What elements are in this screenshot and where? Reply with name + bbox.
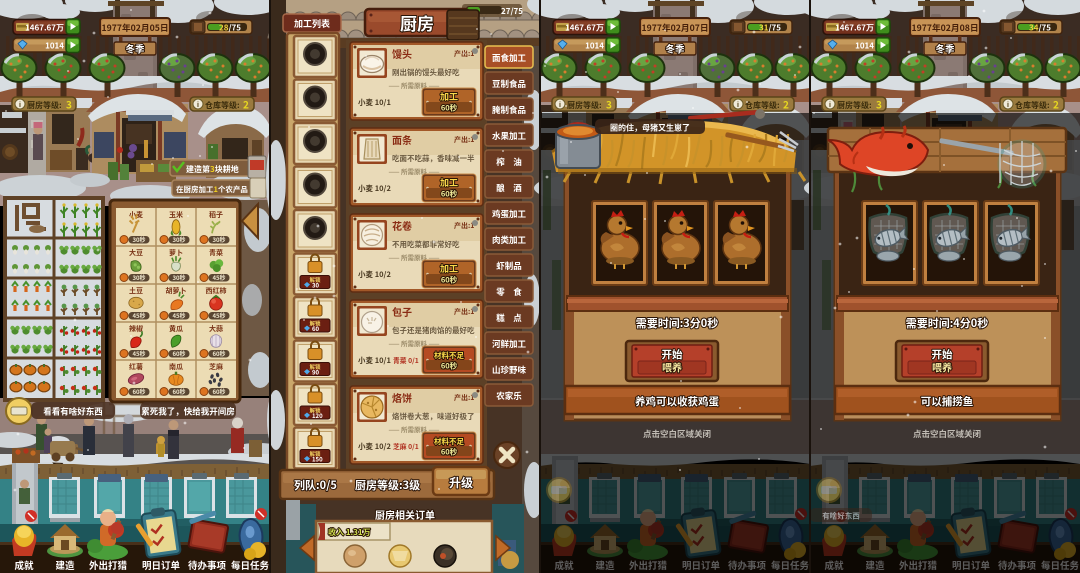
svg-text:小麦 10/2: 小麦 10/2 <box>358 183 391 194</box>
svg-text:升级: 升级 <box>449 474 473 491</box>
svg-text:点击空白区域关闭: 点击空白区域关闭 <box>643 428 711 440</box>
svg-text:零 食: 零 食 <box>496 286 522 298</box>
svg-text:60秒: 60秒 <box>212 387 225 396</box>
svg-text:i: i <box>197 100 199 110</box>
svg-text:冬季: 冬季 <box>125 42 145 56</box>
svg-text:虾制品: 虾制品 <box>496 260 522 272</box>
svg-text:31/75: 31/75 <box>759 23 781 34</box>
svg-text:刚出锅的馒头最好吃: 刚出锅的馒头最好吃 <box>392 67 460 78</box>
svg-text:60秒: 60秒 <box>172 349 185 358</box>
svg-text:吃面不吃蒜，香味减一半: 吃面不吃蒜，香味减一半 <box>392 153 475 164</box>
svg-text:60秒: 60秒 <box>172 387 185 396</box>
svg-text:产出:1: 产出:1 <box>454 135 474 145</box>
svg-text:2: 2 <box>1053 97 1059 112</box>
svg-text:仓库等级:: 仓库等级: <box>205 100 240 111</box>
svg-text:1977年02月07日: 1977年02月07日 <box>641 21 708 34</box>
svg-text:60秒: 60秒 <box>441 275 458 286</box>
svg-text:2: 2 <box>783 97 789 112</box>
svg-text:黄瓜: 黄瓜 <box>169 324 183 334</box>
svg-text:45秒: 45秒 <box>132 311 145 320</box>
svg-text:1014: 1014 <box>855 41 874 52</box>
svg-text:榨 油: 榨 油 <box>496 156 522 168</box>
svg-text:45秒: 45秒 <box>172 311 185 320</box>
svg-text:1467.67万: 1467.67万 <box>835 23 874 34</box>
svg-text:辣椒: 辣椒 <box>129 324 143 334</box>
svg-text:农家乐: 农家乐 <box>496 390 522 402</box>
svg-text:3: 3 <box>66 97 72 112</box>
svg-text:产出:1: 产出:1 <box>454 221 474 231</box>
svg-text:厨房等级:: 厨房等级: <box>567 100 602 111</box>
svg-text:90: 90 <box>312 368 320 377</box>
svg-text:厨房等级:: 厨房等级: <box>837 100 872 111</box>
svg-text:加工: 加工 <box>440 176 458 189</box>
svg-text:28/75: 28/75 <box>219 23 241 34</box>
svg-text:每日任务: 每日任务 <box>231 558 270 572</box>
svg-text:大蒜: 大蒜 <box>209 324 223 334</box>
svg-text:厨房等级:3级: 厨房等级:3级 <box>355 477 420 493</box>
svg-text:产出:1: 产出:1 <box>454 49 474 59</box>
svg-text:冬季: 冬季 <box>665 42 685 56</box>
svg-text:30秒: 30秒 <box>172 235 185 244</box>
svg-text:烙饼卷大葱，味道好极了: 烙饼卷大葱，味道好极了 <box>392 411 475 422</box>
svg-text:成就: 成就 <box>14 558 34 572</box>
svg-text:面条: 面条 <box>392 132 412 147</box>
svg-text:养鸡可以收获鸡蛋: 养鸡可以收获鸡蛋 <box>635 394 719 409</box>
svg-text:馒头: 馒头 <box>392 46 412 61</box>
svg-text:45秒: 45秒 <box>212 273 225 282</box>
svg-text:青菜: 青菜 <box>209 248 223 258</box>
svg-text:加工列表: 加工列表 <box>294 17 330 30</box>
svg-text:酿 酒: 酿 酒 <box>496 182 522 194</box>
svg-text:花卷: 花卷 <box>392 218 412 233</box>
svg-text:材料不足: 材料不足 <box>434 350 464 361</box>
svg-text:60秒: 60秒 <box>441 189 458 200</box>
svg-text:山珍野味: 山珍野味 <box>492 364 527 376</box>
svg-text:产出:1: 产出:1 <box>454 307 474 317</box>
svg-text:i: i <box>1007 100 1009 110</box>
svg-text:产出:1: 产出:1 <box>454 393 474 403</box>
svg-text:45秒: 45秒 <box>212 311 225 320</box>
svg-text:i: i <box>559 100 561 110</box>
svg-text:30秒: 30秒 <box>132 273 145 282</box>
svg-text:1467.67万: 1467.67万 <box>565 23 604 34</box>
svg-text:30秒: 30秒 <box>132 235 145 244</box>
svg-text:喂养: 喂养 <box>662 360 682 375</box>
svg-text:包子: 包子 <box>392 304 412 319</box>
svg-text:待办事项: 待办事项 <box>188 558 227 572</box>
svg-text:需要时间:3分0秒: 需要时间:3分0秒 <box>636 315 719 331</box>
svg-text:34/75: 34/75 <box>1029 23 1051 34</box>
svg-text:厨房等级:: 厨房等级: <box>27 100 62 111</box>
svg-text:1977年02月05日: 1977年02月05日 <box>101 21 168 34</box>
svg-text:厨房: 厨房 <box>400 10 434 35</box>
svg-text:1467.67万: 1467.67万 <box>25 23 64 34</box>
svg-text:肉类加工: 肉类加工 <box>492 234 527 246</box>
svg-text:加工: 加工 <box>440 90 458 103</box>
svg-text:在厨房加工1个农产品: 在厨房加工1个农产品 <box>176 184 248 195</box>
svg-text:糕 点: 糕 点 <box>496 312 522 324</box>
svg-text:圈的住，母猪又生崽了: 圈的住，母猪又生崽了 <box>610 123 690 134</box>
svg-text:芝麻 0/1: 芝麻 0/1 <box>393 441 419 451</box>
svg-text:30秒: 30秒 <box>212 235 225 244</box>
svg-text:南瓜: 南瓜 <box>169 362 183 372</box>
svg-text:水果加工: 水果加工 <box>492 130 527 142</box>
svg-text:i: i <box>829 100 831 110</box>
svg-text:芝麻: 芝麻 <box>209 362 223 372</box>
svg-text:西红柿: 西红柿 <box>206 286 227 296</box>
svg-text:土豆: 土豆 <box>129 286 143 296</box>
svg-text:玉米: 玉米 <box>169 210 183 220</box>
svg-text:1977年02月08日: 1977年02月08日 <box>911 21 978 34</box>
svg-text:30秒: 30秒 <box>172 273 185 282</box>
svg-text:建造: 建造 <box>55 558 75 572</box>
svg-text:外出打猎: 外出打猎 <box>89 558 128 572</box>
svg-text:看看有啥好东西: 看看有啥好东西 <box>43 406 103 418</box>
svg-text:60秒: 60秒 <box>441 447 458 458</box>
svg-text:小麦 10/2: 小麦 10/2 <box>358 269 391 280</box>
svg-text:150: 150 <box>312 455 323 464</box>
svg-text:60: 60 <box>312 324 320 333</box>
svg-text:小麦 10/1: 小麦 10/1 <box>358 97 391 108</box>
svg-text:包子还是猪肉馅的最好吃: 包子还是猪肉馅的最好吃 <box>392 325 475 336</box>
svg-text:面食加工: 面食加工 <box>492 52 527 64</box>
svg-text:河鲜加工: 河鲜加工 <box>492 338 527 350</box>
svg-text:60秒: 60秒 <box>212 349 225 358</box>
svg-text:45秒: 45秒 <box>132 349 145 358</box>
svg-text:60秒: 60秒 <box>441 361 458 372</box>
svg-text:烙饼: 烙饼 <box>392 390 412 405</box>
svg-text:列队:0/5: 列队:0/5 <box>294 477 337 493</box>
svg-text:小麦 10/1: 小麦 10/1 <box>358 355 391 366</box>
svg-text:红薯: 红薯 <box>129 362 143 372</box>
svg-text:120: 120 <box>312 411 323 420</box>
svg-text:i: i <box>19 100 21 110</box>
svg-text:不用吃菜都非常好吃: 不用吃菜都非常好吃 <box>392 239 460 250</box>
svg-text:1014: 1014 <box>45 41 64 52</box>
svg-text:腌制食品: 腌制食品 <box>492 104 526 116</box>
svg-text:豆制食品: 豆制食品 <box>492 78 526 90</box>
svg-text:有啥好东西: 有啥好东西 <box>822 511 860 522</box>
svg-text:可以捕捞鱼: 可以捕捞鱼 <box>921 394 974 409</box>
svg-text:小麦 10/2: 小麦 10/2 <box>358 441 391 452</box>
svg-text:1014: 1014 <box>585 41 604 52</box>
svg-text:稻子: 稻子 <box>209 210 223 220</box>
svg-text:i: i <box>737 100 739 110</box>
svg-text:仓库等级:: 仓库等级: <box>1015 100 1050 111</box>
svg-text:鸡蛋加工: 鸡蛋加工 <box>492 208 527 220</box>
svg-text:27/75: 27/75 <box>501 6 523 17</box>
svg-text:大豆: 大豆 <box>129 248 143 258</box>
svg-text:30: 30 <box>312 281 320 290</box>
svg-text:冬季: 冬季 <box>935 42 955 56</box>
svg-text:3: 3 <box>606 97 612 112</box>
svg-text:60秒: 60秒 <box>132 387 145 396</box>
svg-text:需要时间:4分0秒: 需要时间:4分0秒 <box>906 315 989 331</box>
svg-text:材料不足: 材料不足 <box>434 436 464 447</box>
svg-text:仓库等级:: 仓库等级: <box>745 100 780 111</box>
svg-text:收入 1.31万: 收入 1.31万 <box>328 527 371 538</box>
svg-text:青菜 0/1: 青菜 0/1 <box>393 355 419 365</box>
svg-text:累死我了，快给我开间房: 累死我了，快给我开间房 <box>141 406 235 418</box>
svg-text:建造第3块耕地: 建造第3块耕地 <box>186 164 239 175</box>
svg-text:点击空白区域关闭: 点击空白区域关闭 <box>913 428 981 440</box>
svg-text:3: 3 <box>876 97 882 112</box>
svg-text:明日订单: 明日订单 <box>142 558 181 572</box>
svg-text:喂养: 喂养 <box>932 360 952 375</box>
svg-text:加工: 加工 <box>440 262 458 275</box>
svg-text:2: 2 <box>243 97 249 112</box>
svg-text:60秒: 60秒 <box>441 103 458 114</box>
